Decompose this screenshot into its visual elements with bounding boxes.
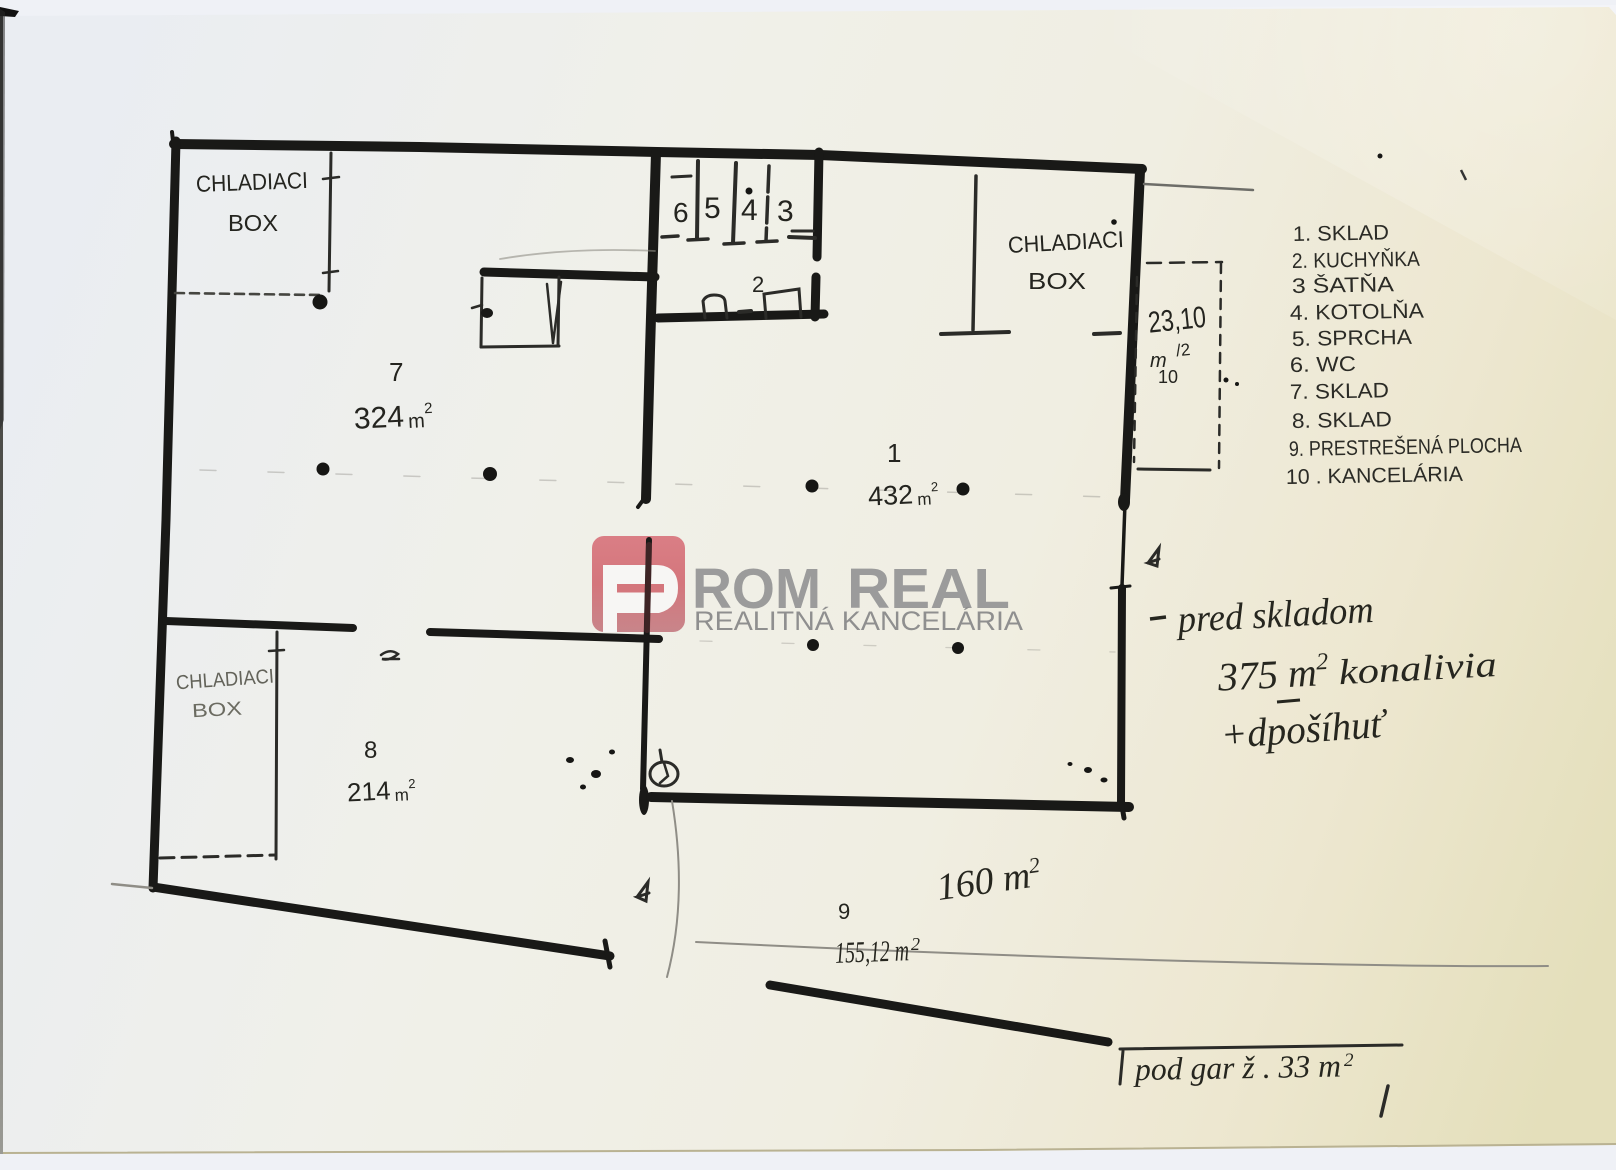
svg-text:3: 3 <box>777 195 794 228</box>
svg-text:BOX: BOX <box>1028 268 1086 294</box>
svg-text:2: 2 <box>752 272 764 297</box>
svg-text:155,12 m: 155,12 m <box>835 934 910 970</box>
svg-text:7. SKLAD: 7. SKLAD <box>1290 379 1389 404</box>
svg-text:9: 9 <box>838 899 850 924</box>
svg-text:8: 8 <box>364 737 377 764</box>
svg-text:5: 5 <box>704 192 721 225</box>
svg-text:2: 2 <box>911 934 920 954</box>
svg-text:23,10: 23,10 <box>1146 301 1207 340</box>
svg-text:6. WC: 6. WC <box>1290 353 1356 377</box>
svg-text:4. KOTOLŇA: 4. KOTOLŇA <box>1290 300 1424 325</box>
svg-text:/2: /2 <box>1175 340 1191 360</box>
svg-text:2. KUCHYŇKA: 2. KUCHYŇKA <box>1292 248 1420 273</box>
svg-text:REALITNÁ KANCELÁRIA: REALITNÁ KANCELÁRIA <box>694 606 1023 636</box>
svg-text:pod gar ž . 33 m: pod gar ž . 33 m <box>1133 1047 1342 1087</box>
svg-text:3 ŠATŇA: 3 ŠATŇA <box>1292 273 1394 298</box>
svg-text:7: 7 <box>389 357 403 387</box>
svg-text:1. SKLAD: 1. SKLAD <box>1293 221 1389 246</box>
svg-text:BOX: BOX <box>192 699 243 723</box>
svg-text:9. PRESTREŠENÁ PLOCHA: 9. PRESTREŠENÁ PLOCHA <box>1289 434 1522 461</box>
svg-text:CHLADIACI: CHLADIACI <box>195 167 308 197</box>
svg-text:1: 1 <box>887 438 901 468</box>
svg-text:6: 6 <box>673 197 689 228</box>
svg-text:2: 2 <box>1344 1050 1354 1071</box>
svg-text:10: 10 <box>1158 367 1178 387</box>
svg-text:10 . KANCELÁRIA: 10 . KANCELÁRIA <box>1286 463 1463 489</box>
svg-text:BOX: BOX <box>228 210 278 236</box>
svg-text:5. SPRCHA: 5. SPRCHA <box>1292 326 1412 351</box>
svg-text:8. SKLAD: 8. SKLAD <box>1292 408 1392 433</box>
svg-text:4: 4 <box>741 194 758 227</box>
